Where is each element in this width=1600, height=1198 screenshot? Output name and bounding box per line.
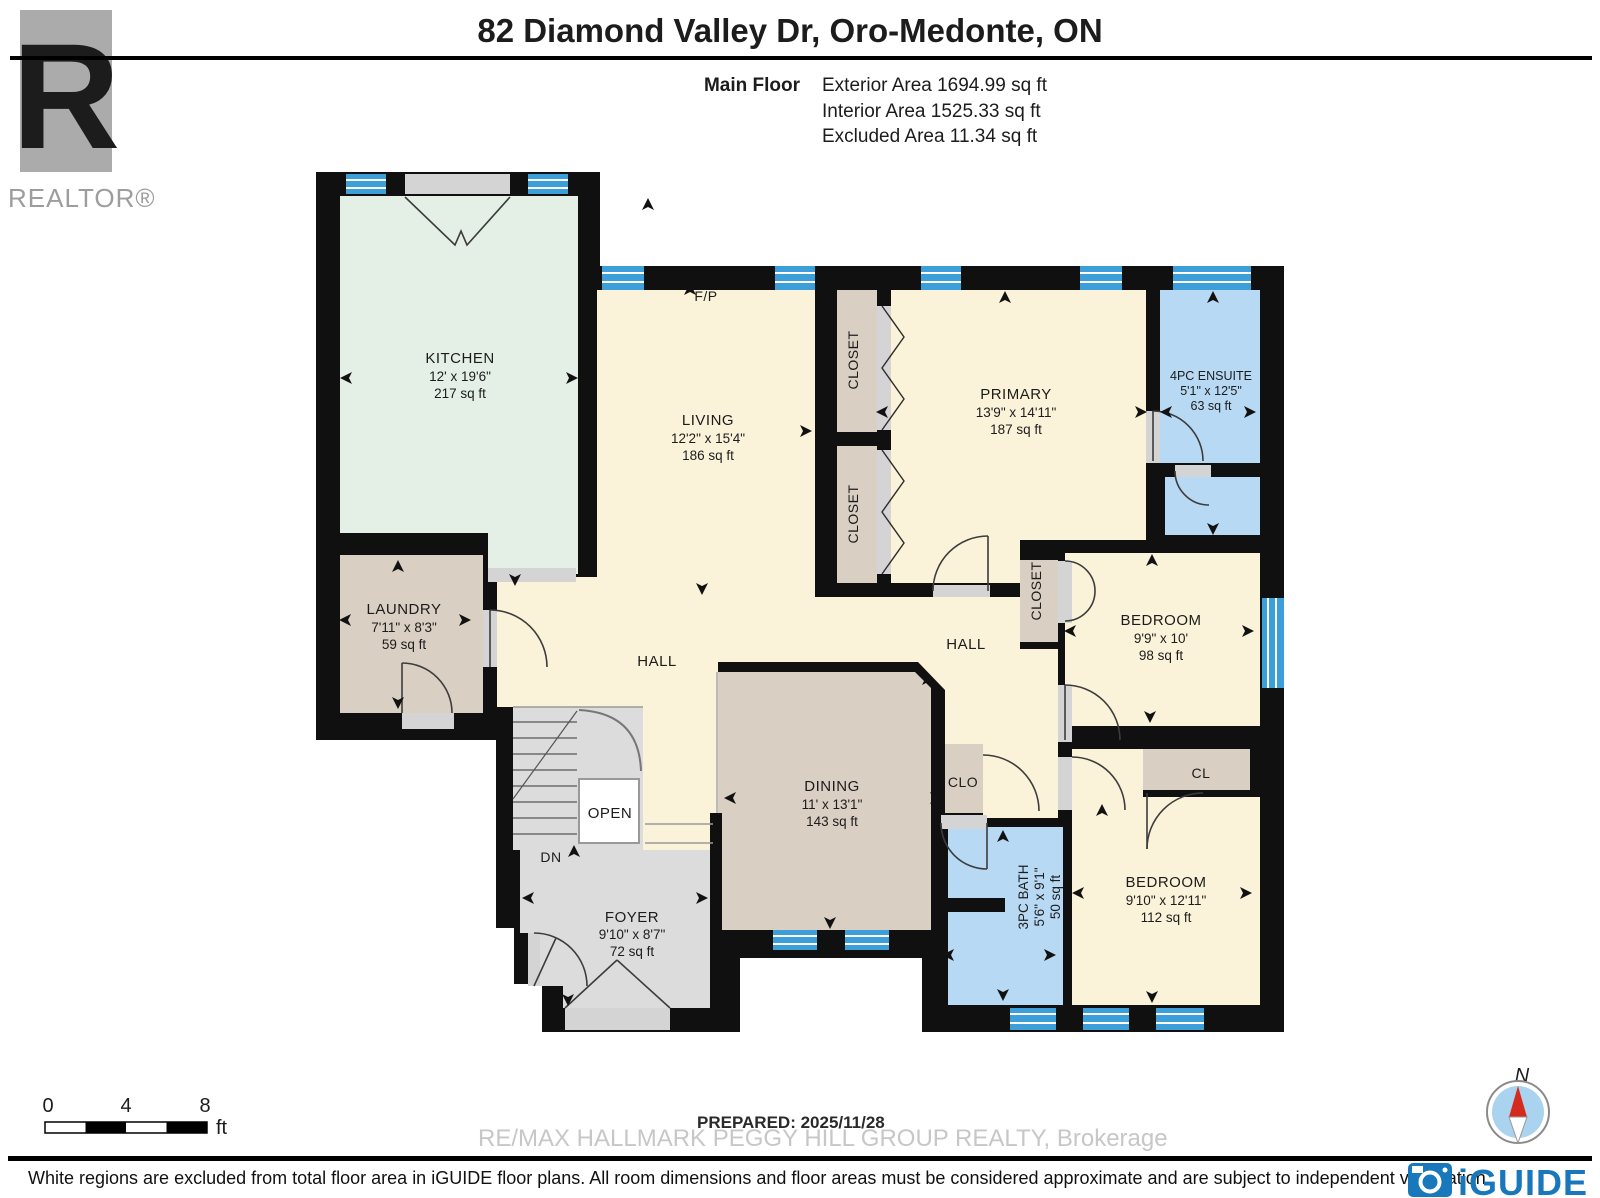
kitchen-name: KITCHEN bbox=[425, 350, 494, 367]
excluded-area: Excluded Area 11.34 sq ft bbox=[822, 126, 1038, 147]
foyer-name: FOYER bbox=[605, 909, 659, 926]
scale-tick-4: 4 bbox=[120, 1095, 131, 1117]
primary-area: 187 sq ft bbox=[990, 422, 1042, 437]
iguide-camera-icon bbox=[1408, 1163, 1452, 1197]
kitchen-area: 217 sq ft bbox=[434, 386, 486, 401]
window bbox=[773, 930, 817, 950]
scale-tick-8: 8 bbox=[199, 1095, 210, 1117]
laundry-name: LAUNDRY bbox=[367, 601, 442, 618]
kitchen-dims: 12' x 19'6" bbox=[429, 369, 491, 384]
bath-dims: 5'6" x 9'1" bbox=[1032, 867, 1047, 926]
scale-unit: ft bbox=[216, 1117, 228, 1139]
window bbox=[1010, 1008, 1056, 1030]
window bbox=[1262, 598, 1284, 688]
window bbox=[1173, 266, 1251, 290]
floor-plan-page: R REALTOR® 82 Diamond Valley Dr, Oro-Med… bbox=[0, 0, 1600, 1198]
window bbox=[1156, 1008, 1204, 1030]
laundry-area: 59 sq ft bbox=[382, 637, 427, 652]
room-fills bbox=[340, 196, 1260, 1008]
bedroom-1-area: 98 sq ft bbox=[1139, 648, 1184, 663]
iguide-logo: iGUIDE bbox=[1408, 1162, 1588, 1198]
realtor-logo: R REALTOR® bbox=[8, 10, 156, 213]
primary-dims: 13'9" x 14'11" bbox=[976, 405, 1057, 420]
foyer-dims: 9'10" x 8'7" bbox=[599, 927, 666, 942]
laundry-dims: 7'11" x 8'3" bbox=[371, 620, 437, 635]
dining-name: DINING bbox=[804, 778, 860, 795]
bedroom-1-dims: 9'9" x 10' bbox=[1134, 631, 1188, 646]
footer-rule bbox=[8, 1156, 1592, 1161]
open-label: OPEN bbox=[588, 805, 633, 822]
ensuite-name: 4PC ENSUITE bbox=[1170, 369, 1252, 383]
cl-label: CL bbox=[1192, 765, 1211, 781]
window bbox=[921, 266, 961, 290]
plan: KITCHEN 12' x 19'6" 217 sq ft LIVING 12'… bbox=[316, 172, 1284, 1032]
dining-area: 143 sq ft bbox=[806, 814, 858, 829]
bedroom-2-area: 112 sq ft bbox=[1141, 910, 1192, 925]
room-kitchen bbox=[340, 196, 578, 574]
direction-arrow bbox=[642, 198, 654, 210]
floor-label: Main Floor bbox=[704, 75, 801, 96]
foyer-area: 72 sq ft bbox=[610, 944, 655, 959]
closet-primary-1-label: CLOSET bbox=[845, 330, 861, 389]
closet-bedroom-label: CLOSET bbox=[1028, 561, 1044, 620]
hall-right-label: HALL bbox=[946, 636, 986, 653]
bath-name: 3PC BATH bbox=[1016, 864, 1031, 929]
realtor-logo-label: REALTOR® bbox=[8, 183, 156, 213]
scale-tick-0: 0 bbox=[42, 1095, 53, 1117]
header: R REALTOR® 82 Diamond Valley Dr, Oro-Med… bbox=[8, 10, 1592, 213]
bath-area: 50 sq ft bbox=[1048, 875, 1063, 920]
clo-label: CLO bbox=[948, 774, 978, 790]
fireplace-label: F/P bbox=[694, 288, 717, 304]
iguide-logo-text: iGUIDE bbox=[1458, 1162, 1588, 1198]
window bbox=[602, 266, 644, 290]
living-dims: 12'2" x 15'4" bbox=[671, 431, 745, 446]
dn-label: DN bbox=[540, 849, 561, 865]
scale-bar: 0 4 8 ft bbox=[42, 1095, 227, 1139]
prepared-date: PREPARED: 2025/11/28 bbox=[697, 1113, 885, 1132]
ensuite-dims: 5'1" x 12'5" bbox=[1180, 384, 1242, 398]
closet-primary-2-label: CLOSET bbox=[845, 484, 861, 543]
header-rule bbox=[10, 56, 1592, 60]
compass: N bbox=[1487, 1065, 1549, 1143]
primary-name: PRIMARY bbox=[980, 386, 1052, 403]
dining-dims: 11' x 13'1" bbox=[802, 797, 863, 812]
page-title: 82 Diamond Valley Dr, Oro-Medonte, ON bbox=[477, 12, 1102, 49]
window bbox=[845, 930, 889, 950]
realtor-logo-r: R bbox=[12, 12, 120, 180]
window bbox=[528, 174, 568, 194]
living-area: 186 sq ft bbox=[682, 448, 734, 463]
bedroom-2-name: BEDROOM bbox=[1125, 874, 1206, 891]
exterior-area: Exterior Area 1694.99 sq ft bbox=[822, 75, 1048, 96]
ensuite-area: 63 sq ft bbox=[1191, 399, 1233, 413]
footer: RE/MAX HALLMARK PEGGY HILL GROUP REALTY,… bbox=[8, 1065, 1592, 1198]
hall-left-label: HALL bbox=[637, 653, 677, 670]
window bbox=[1083, 1008, 1129, 1030]
living-name: LIVING bbox=[682, 412, 734, 429]
bedroom-2-dims: 9'10" x 12'11" bbox=[1126, 893, 1207, 908]
window bbox=[775, 266, 815, 290]
disclaimer-text: White regions are excluded from total fl… bbox=[28, 1168, 1491, 1188]
window bbox=[346, 174, 386, 194]
bedroom-1-name: BEDROOM bbox=[1120, 612, 1201, 629]
window bbox=[1080, 266, 1122, 290]
interior-area: Interior Area 1525.33 sq ft bbox=[822, 101, 1041, 122]
floor-plan-canvas: R REALTOR® 82 Diamond Valley Dr, Oro-Med… bbox=[0, 0, 1600, 1198]
